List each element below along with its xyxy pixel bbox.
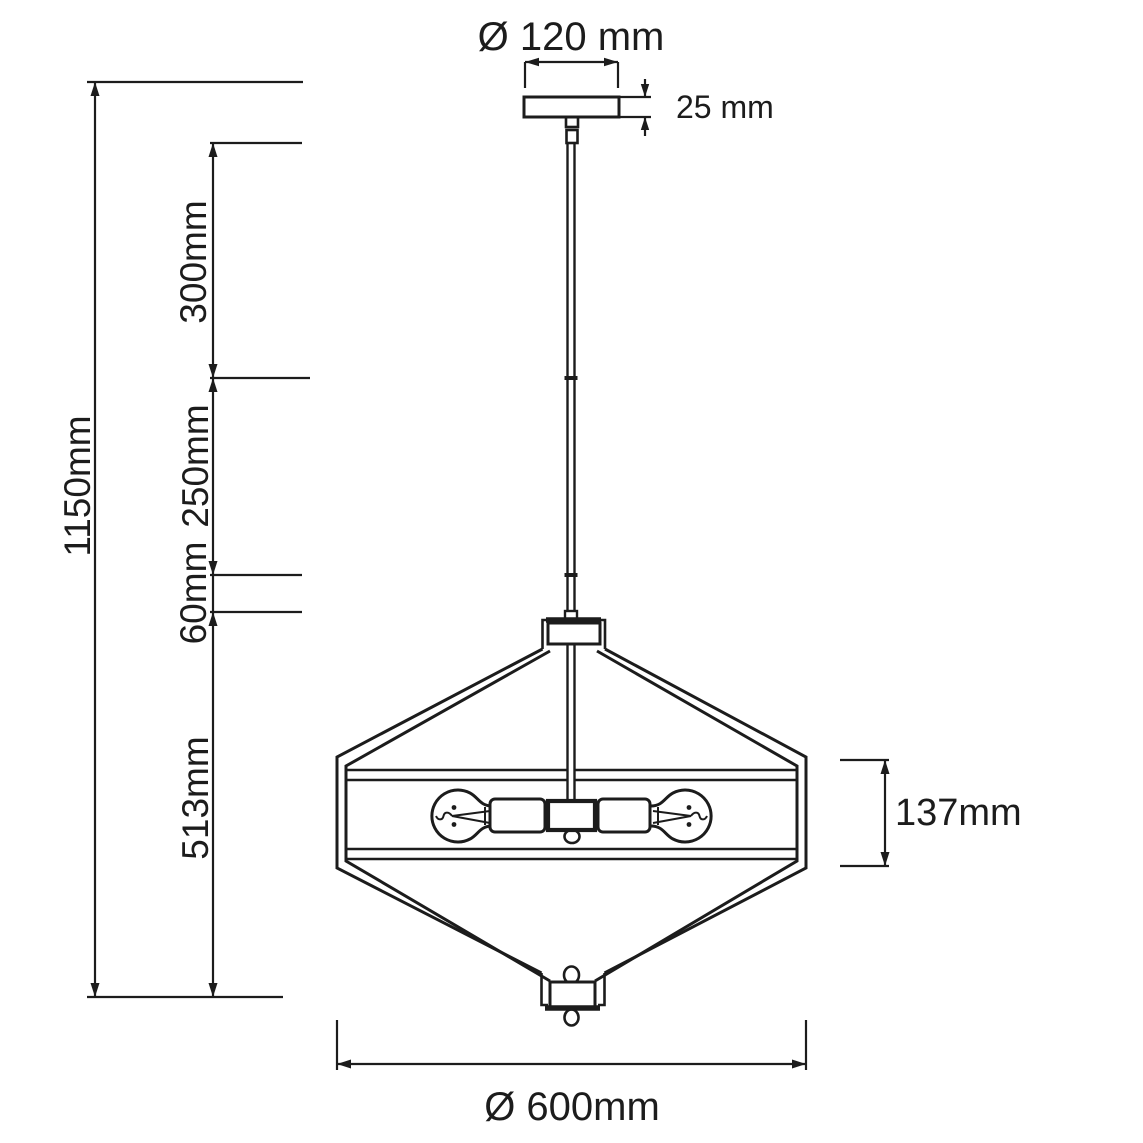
canopy-diameter-label: Ø 120 mm [478,15,665,59]
pendant-lamp-drawing: 1150mm 300mm 250mm 60mm 513mm Ø 120 mm [0,0,1143,1143]
canopy-thickness-label: 25 mm [676,89,774,125]
overall-height-label: 1150mm [57,415,98,556]
bulb-left [432,790,492,842]
top-hub [546,620,601,644]
center-hub-block [548,801,595,843]
shade-diameter-label: Ø 600mm [484,1085,660,1129]
dimension-chain-sections: 300mm 250mm 60mm 513mm [173,143,310,997]
dimension-shade-diameter: Ø 600mm [337,1020,806,1129]
band-height-label: 137mm [895,792,1022,834]
bulb-right [651,790,711,842]
bottom-finial [545,967,600,1026]
dimension-band-height: 137mm [840,760,1022,866]
rod-middle-label: 250mm [175,404,216,527]
dimension-canopy-thickness: 25 mm [619,79,774,136]
technical-drawing-page: 1150mm 300mm 250mm 60mm 513mm Ø 120 mm [0,0,1143,1143]
hang-rod [565,143,578,619]
center-rod [567,645,576,801]
canopy [524,97,619,143]
shade-height-label: 513mm [175,736,216,859]
dimension-canopy-diameter: Ø 120 mm [478,15,665,88]
rod-lower-label: 60mm [173,542,214,645]
rod-upper-label: 300mm [173,200,214,323]
